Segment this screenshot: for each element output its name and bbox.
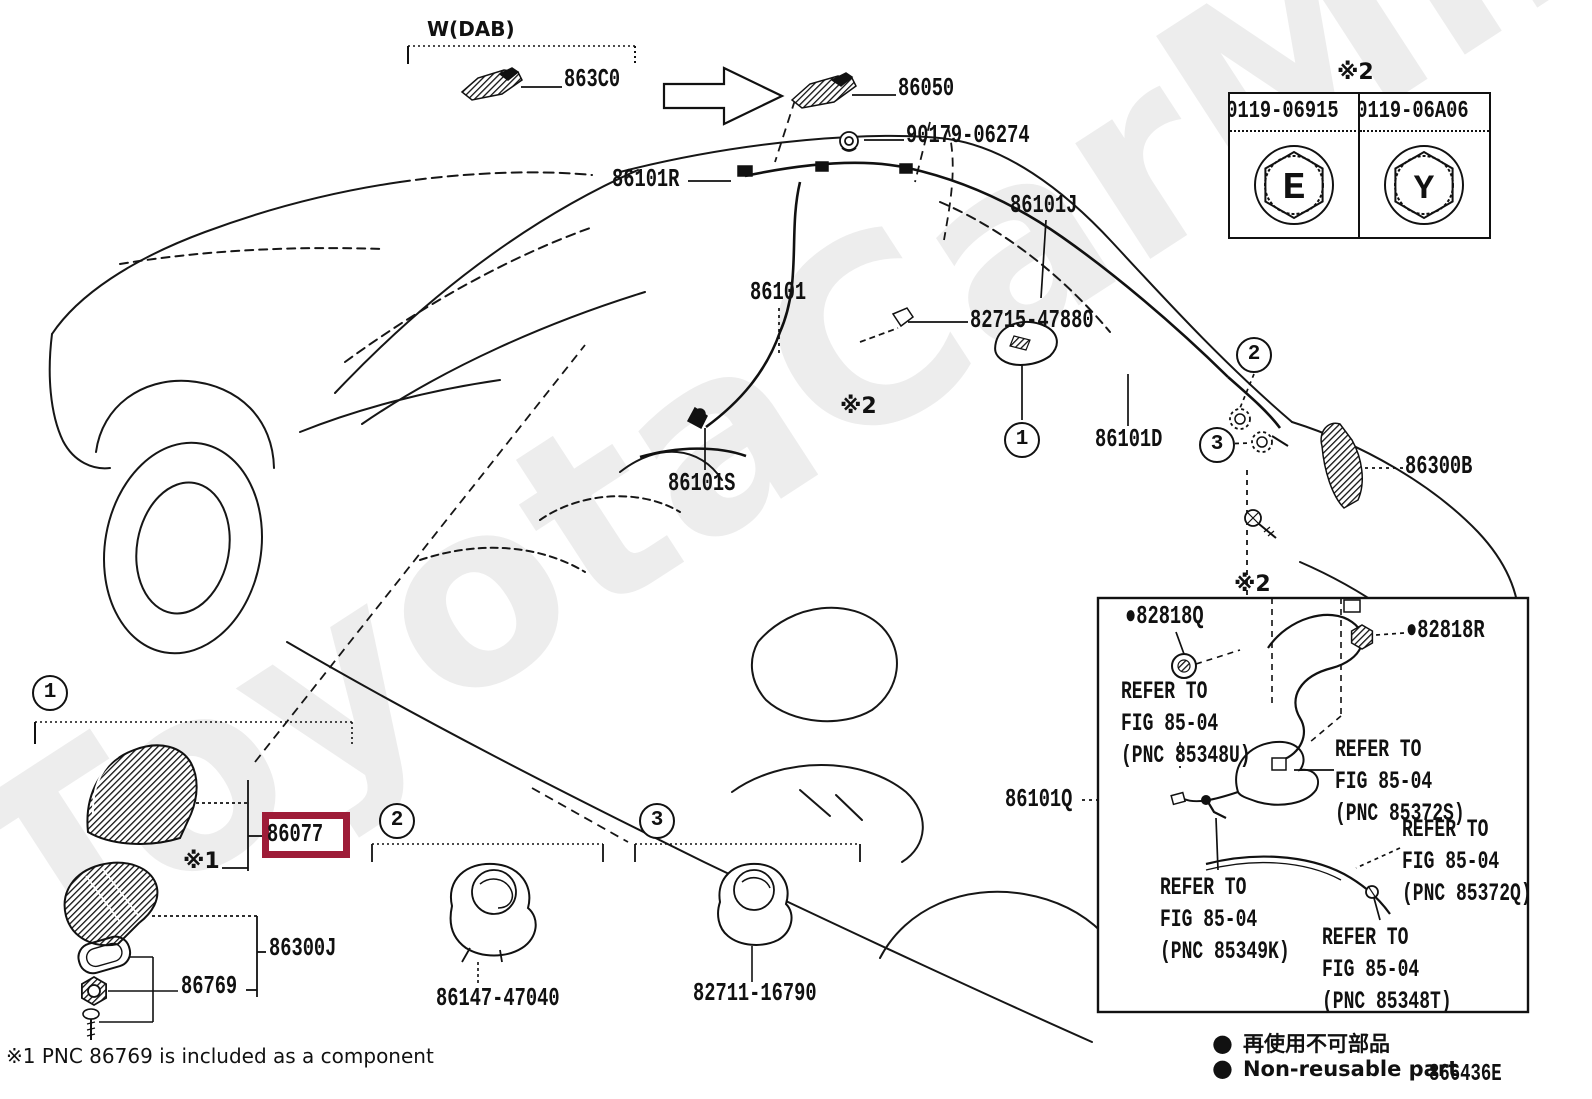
callout-3-car: 3: [1199, 427, 1235, 463]
nut-86769-icon: [82, 977, 106, 1005]
label-82818q: ●82818Q: [1125, 603, 1204, 630]
nut-substitution-table: 90119-06915 90119-06A06 E Y: [1228, 92, 1491, 239]
label-82818r: ●82818R: [1406, 617, 1485, 644]
non-reusable-bullet-icon: ●: [1212, 1054, 1233, 1082]
legend-en: ●Non-reusable part: [1212, 1054, 1458, 1082]
callout-1-group: 1: [32, 675, 68, 711]
diagram-code: 866436E: [1429, 1062, 1502, 1087]
callout-1-car: 1: [1004, 422, 1040, 458]
clip3-bracket: [635, 844, 860, 862]
label-86101j: 86101J: [1010, 192, 1077, 219]
callout-2-car: 2: [1236, 337, 1272, 373]
nut-table-header-right: 90119-06A06: [1360, 94, 1490, 132]
nut-90179-icon: [840, 132, 858, 151]
svg-text:Y: Y: [1414, 171, 1435, 209]
label-86101q: 86101Q: [1005, 786, 1072, 813]
antenna-fin-86077: [87, 745, 196, 844]
ref-pnc-85349k: REFER TO FIG 85-04 (PNC 85349K): [1160, 872, 1290, 968]
non-reusable-bullet-icon: ●: [1212, 1029, 1233, 1057]
callout-2-group: 2: [379, 803, 415, 839]
label-86101s: 86101S: [668, 470, 735, 497]
clip-86147-icon: [451, 864, 536, 986]
clip-86050-icon: [792, 73, 856, 108]
label-86101r: 86101R: [612, 166, 679, 193]
label-86769: 86769: [181, 973, 237, 1000]
arrow-icon: [664, 68, 782, 124]
ref-pnc-85372q: REFER TO FIG 85-04 (PNC 85372Q): [1402, 814, 1532, 910]
bolt-y-icon: Y: [1382, 143, 1466, 227]
label-86300j: 86300J: [269, 935, 336, 962]
label-86147-47040: 86147-47040: [436, 985, 560, 1012]
note-2-right: ※2: [1234, 572, 1271, 597]
screw-bottom-left-icon: [83, 1009, 99, 1040]
screw-right-icon: [1245, 510, 1276, 538]
label-82715-47880: 82715-47880: [970, 307, 1094, 334]
wire-harness: [640, 163, 1280, 457]
label-90179-06274: 90179-06274: [906, 122, 1030, 149]
nut-table-cell-left: E: [1230, 132, 1360, 237]
label-863c0: 863C0: [564, 66, 620, 93]
nut-table-cell-right: Y: [1360, 132, 1490, 237]
parts-diagram-page: ToyotaCarMine.ru: [0, 0, 1592, 1099]
antenna-86300b-part: [1321, 423, 1362, 508]
label-86050: 86050: [898, 75, 954, 102]
gasket-links: [99, 957, 178, 1022]
svg-text:E: E: [1282, 167, 1305, 210]
antenna-base-86300j: [65, 863, 158, 945]
label-86101d: 86101D: [1095, 426, 1162, 453]
ref-pnc-85348t: REFER TO FIG 85-04 (PNC 85348T): [1322, 922, 1452, 1018]
clip-82711-icon: [718, 864, 791, 982]
bolt-e-icon: E: [1252, 143, 1336, 227]
clip2-bracket: [372, 844, 603, 862]
wdab-bracket: [408, 46, 635, 64]
callout-3-group: 3: [639, 803, 675, 839]
highlighted-part-86077: 86077: [262, 812, 350, 858]
label-82711-16790: 82711-16790: [693, 980, 817, 1007]
nut-table-header-left: 90119-06915: [1230, 94, 1360, 132]
ref-pnc-85348u: REFER TO FIG 85-04 (PNC 85348U): [1121, 676, 1251, 772]
clip-863c0-icon: [462, 68, 522, 100]
footnote: ※1 PNC 86769 is included as a component: [6, 1044, 434, 1068]
antenna-group-bracket: [35, 722, 352, 744]
note-2-mid: ※2: [840, 394, 877, 419]
label-86077: 86077: [267, 821, 323, 848]
label-86300b: 86300B: [1405, 453, 1472, 480]
label-86101: 86101: [750, 279, 806, 306]
wdab-label: W(DAB): [427, 17, 515, 41]
note-2-table: ※2: [1337, 60, 1374, 85]
grommet-rings: [1230, 409, 1288, 452]
note-1-antenna: ※1: [183, 849, 220, 874]
